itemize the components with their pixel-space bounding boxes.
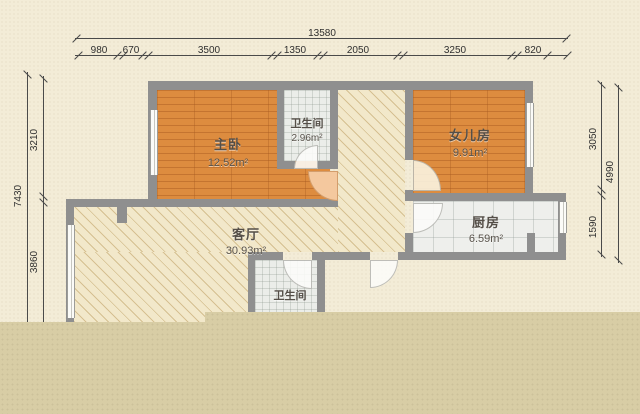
room-label-bathroom-top: 卫生间 bbox=[281, 115, 333, 131]
window-daughter-room-icon bbox=[526, 103, 534, 167]
wall-bottom-right-of-entry bbox=[398, 252, 566, 260]
dim-label-top-seg: 820 bbox=[513, 45, 553, 56]
dim-label-right-seg: 1590 bbox=[588, 205, 600, 249]
hallway-floor bbox=[338, 90, 405, 252]
dim-line-right-total bbox=[618, 85, 619, 263]
door-swing-entry-icon bbox=[370, 260, 398, 288]
room-label-master-bedroom: 主卧 bbox=[193, 134, 263, 153]
dim-label-total-height: 7430 bbox=[13, 174, 25, 218]
wall-bathroom-bottom-left bbox=[248, 252, 255, 312]
room-area-living-room: 30.93m² bbox=[206, 245, 286, 257]
window-living-room-icon bbox=[67, 225, 75, 318]
room-area-bathroom-top: 2.96m² bbox=[281, 133, 333, 144]
wall-bottom-left-of-entry bbox=[325, 252, 370, 260]
dim-label-right-total: 4990 bbox=[605, 150, 617, 194]
room-label-kitchen: 厨房 bbox=[451, 212, 521, 231]
dim-label-top-seg: 2050 bbox=[338, 45, 378, 56]
dim-label-left-seg: 3860 bbox=[29, 240, 41, 284]
dim-label-top-seg: 3250 bbox=[435, 45, 475, 56]
room-area-kitchen: 6.59m² bbox=[451, 233, 521, 245]
dim-line-right-segments bbox=[601, 82, 602, 257]
wall-kitchen-stub bbox=[527, 233, 535, 252]
dim-line-left-total bbox=[27, 72, 28, 322]
window-master-bedroom-icon bbox=[150, 110, 158, 175]
wall-bathroom-top-bottom-left bbox=[277, 161, 295, 169]
dim-label-right-seg: 3050 bbox=[588, 117, 600, 161]
window-kitchen-icon bbox=[559, 202, 567, 233]
room-label-living-room: 客厅 bbox=[211, 224, 281, 243]
wall-daughter-left-upper bbox=[405, 81, 413, 160]
wall-bathroom-bottom-top-b bbox=[312, 252, 325, 260]
dim-label-left-seg: 3210 bbox=[29, 118, 41, 162]
wall-stub bbox=[117, 207, 127, 223]
cropped-area-left bbox=[0, 322, 205, 414]
dim-label-total-width: 13580 bbox=[294, 28, 350, 39]
floor-plan-canvas: 13580 980 670 3500 1350 2050 3250 820 74… bbox=[0, 0, 640, 414]
dim-label-top-seg: 3500 bbox=[189, 45, 229, 56]
room-area-daughter-room: 9.91m² bbox=[435, 147, 505, 159]
wall-bathroom-bottom-right bbox=[317, 252, 325, 312]
room-label-bathroom-bottom: 卫生间 bbox=[262, 287, 318, 303]
wall-top bbox=[148, 81, 533, 90]
wall-living-top bbox=[66, 199, 338, 207]
room-label-daughter-room: 女儿房 bbox=[435, 125, 505, 144]
room-area-master-bedroom: 12.52m² bbox=[188, 157, 268, 169]
wall-kitchen-top bbox=[405, 193, 566, 201]
dim-label-top-seg: 670 bbox=[111, 45, 151, 56]
cropped-area-right bbox=[205, 312, 640, 414]
dim-line-left-segments bbox=[43, 76, 44, 322]
dim-label-top-seg: 1350 bbox=[275, 45, 315, 56]
